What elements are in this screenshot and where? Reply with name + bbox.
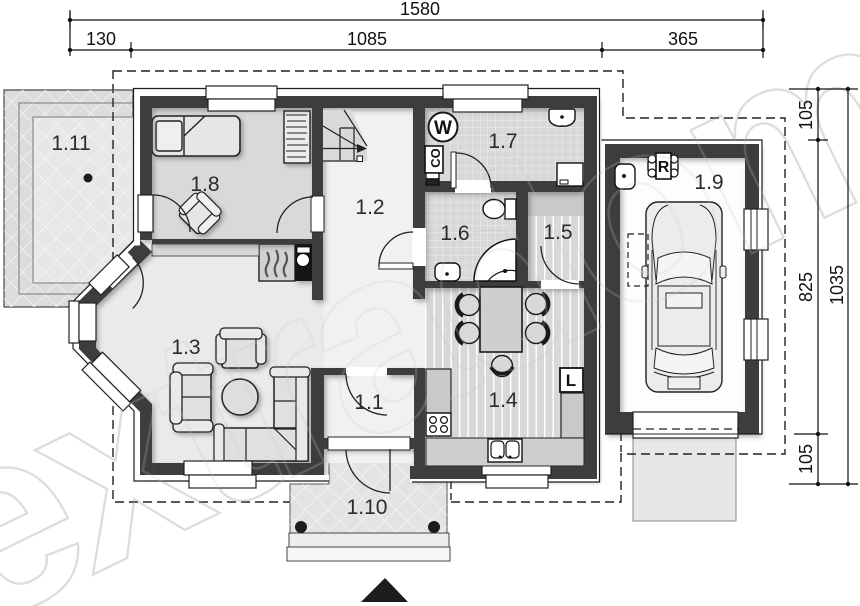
svg-text:1.10: 1.10 bbox=[347, 496, 388, 519]
svg-text:1.9: 1.9 bbox=[694, 171, 723, 194]
svg-text:1.8: 1.8 bbox=[190, 173, 219, 196]
svg-text:1.5: 1.5 bbox=[543, 221, 572, 244]
svg-text:365: 365 bbox=[668, 29, 698, 49]
svg-text:1.11: 1.11 bbox=[51, 132, 90, 155]
svg-text:105: 105 bbox=[796, 444, 816, 474]
svg-text:130: 130 bbox=[86, 29, 116, 49]
svg-text:825: 825 bbox=[796, 272, 816, 302]
svg-text:105: 105 bbox=[796, 100, 816, 130]
svg-text:1.1: 1.1 bbox=[354, 391, 383, 414]
svg-text:1.4: 1.4 bbox=[488, 389, 518, 412]
svg-text:W: W bbox=[434, 118, 452, 139]
svg-text:1580: 1580 bbox=[400, 0, 440, 19]
svg-text:1085: 1085 bbox=[347, 29, 387, 49]
svg-text:1.2: 1.2 bbox=[355, 196, 384, 219]
svg-text:1.6: 1.6 bbox=[440, 222, 469, 245]
svg-text:1.3: 1.3 bbox=[171, 336, 200, 359]
svg-text:1035: 1035 bbox=[827, 265, 847, 305]
svg-text:1.7: 1.7 bbox=[488, 130, 517, 153]
